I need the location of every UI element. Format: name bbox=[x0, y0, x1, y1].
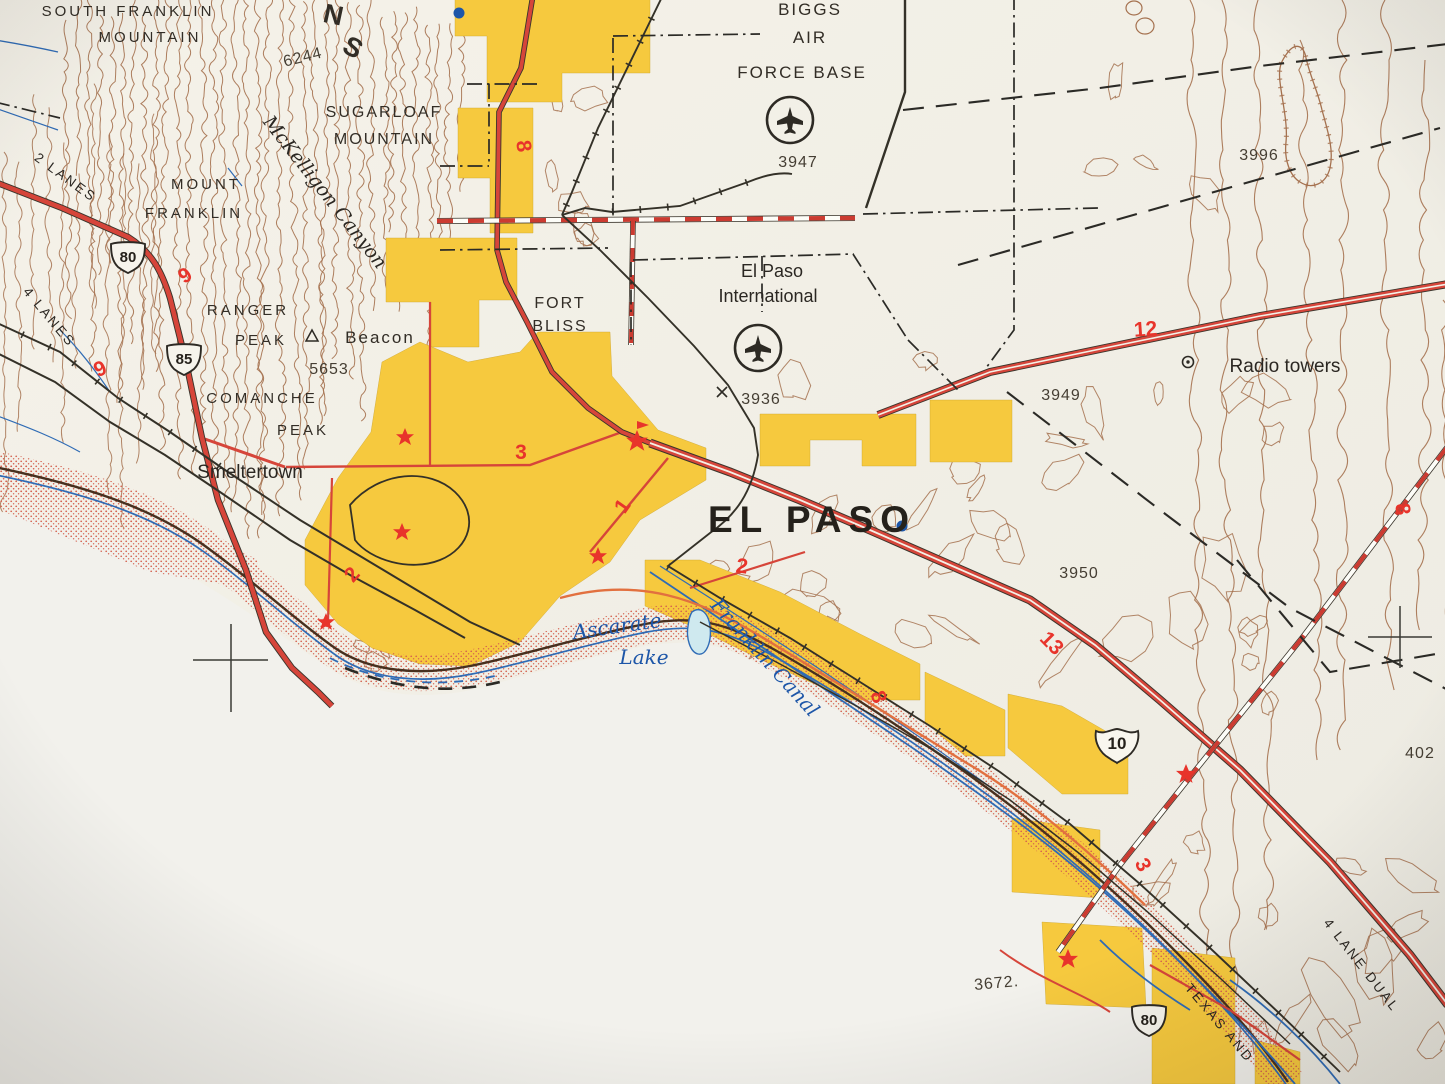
photo-vignette bbox=[0, 0, 1445, 1084]
topo-map-photo: 80 85 10 80 SOUTH FRANKLIN MOUNTAIN N S … bbox=[0, 0, 1445, 1084]
el-paso-topographic-map: 80 85 10 80 SOUTH FRANKLIN MOUNTAIN N S … bbox=[0, 0, 1445, 1084]
